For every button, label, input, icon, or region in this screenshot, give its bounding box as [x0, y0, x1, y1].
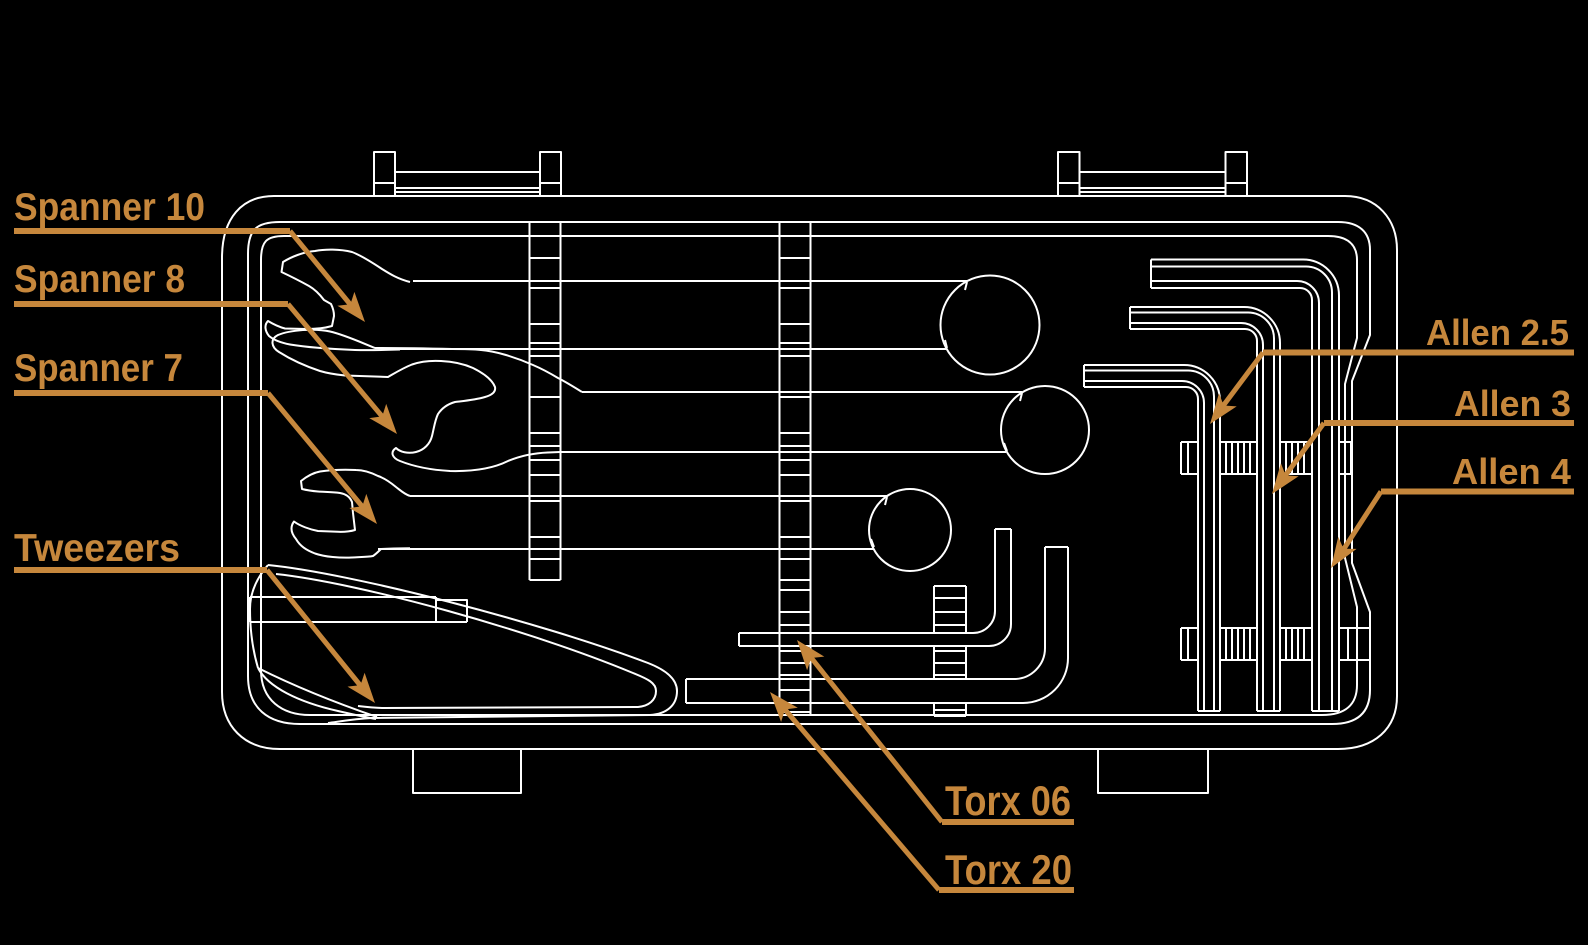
- svg-text:Allen 4: Allen 4: [1452, 451, 1571, 492]
- svg-text:Tweezers: Tweezers: [14, 527, 180, 570]
- svg-text:Spanner 7: Spanner 7: [14, 347, 183, 390]
- svg-text:Torx 20: Torx 20: [945, 846, 1072, 893]
- svg-text:Torx 06: Torx 06: [945, 777, 1071, 824]
- svg-text:Spanner 8: Spanner 8: [14, 258, 185, 301]
- svg-text:Spanner 10: Spanner 10: [14, 186, 205, 229]
- svg-text:Allen 2.5: Allen 2.5: [1426, 312, 1569, 353]
- svg-text:Allen 3: Allen 3: [1454, 383, 1571, 424]
